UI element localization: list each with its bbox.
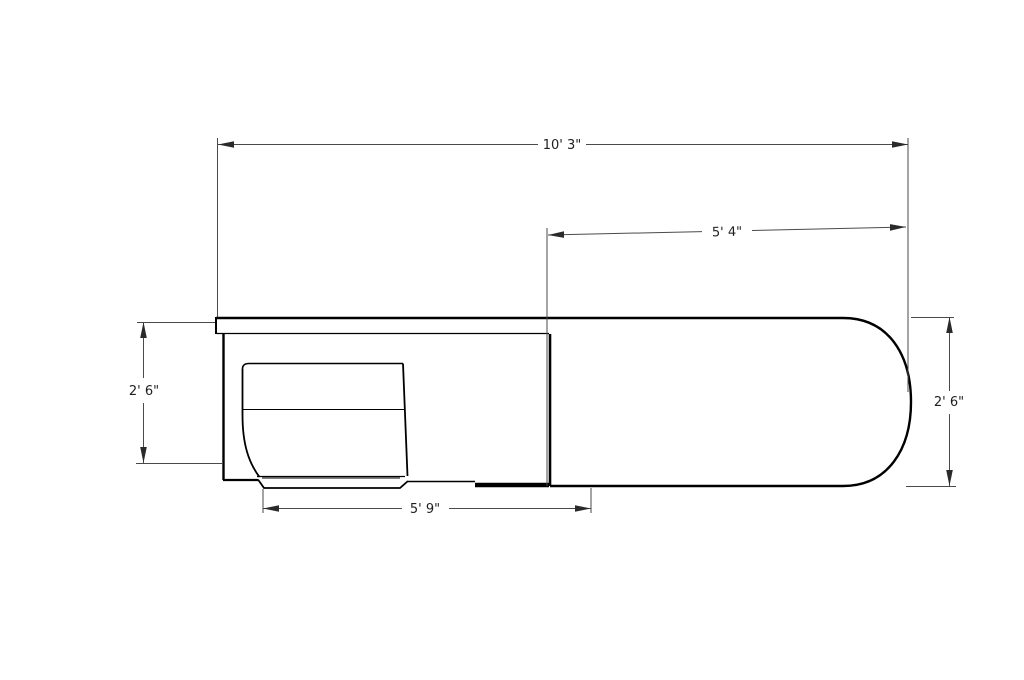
drawer-right-edge [403, 364, 408, 477]
arrow-left-icon [218, 141, 234, 148]
dim-base-length: 5' 9" [263, 502, 591, 517]
dim-line [548, 232, 702, 235]
arrow-down-icon [140, 447, 147, 463]
dim-label-depth-right: 2' 6" [934, 395, 964, 410]
drawer-top-edge [243, 364, 404, 370]
drawer-unit [243, 364, 408, 478]
dim-counter-length: 5' 4" [548, 224, 906, 240]
arrow-up-icon [140, 322, 147, 338]
arrow-down-icon [946, 470, 953, 486]
dim-label-counter-length: 5' 4" [712, 225, 743, 241]
dim-label-base-length: 5' 9" [410, 502, 440, 517]
arrow-left-icon [263, 505, 279, 512]
object-outline [216, 317, 911, 488]
technical-drawing-canvas: 10' 3" 5' 4" 2' 6" 2' 6" [0, 0, 1024, 680]
drawing-svg: 10' 3" 5' 4" 2' 6" 2' 6" [0, 0, 1024, 680]
drawer-left-curved-edge [243, 369, 260, 477]
arrow-right-icon [890, 224, 906, 231]
dim-depth-left: 2' 6" [129, 322, 159, 463]
dim-label-overall-length: 10' 3" [543, 138, 582, 153]
arrow-right-icon [575, 505, 591, 512]
dim-overall-length: 10' 3" [218, 138, 908, 153]
arrow-right-icon [892, 141, 908, 148]
arrow-up-icon [946, 317, 953, 333]
dim-depth-right: 2' 6" [934, 317, 964, 486]
dim-label-depth-left: 2' 6" [129, 384, 159, 399]
arrow-left-icon [548, 231, 564, 238]
dim-line [752, 227, 906, 231]
extension-lines [136, 138, 956, 513]
counter-outline-path [216, 318, 911, 486]
base-foot-outline [258, 480, 408, 489]
